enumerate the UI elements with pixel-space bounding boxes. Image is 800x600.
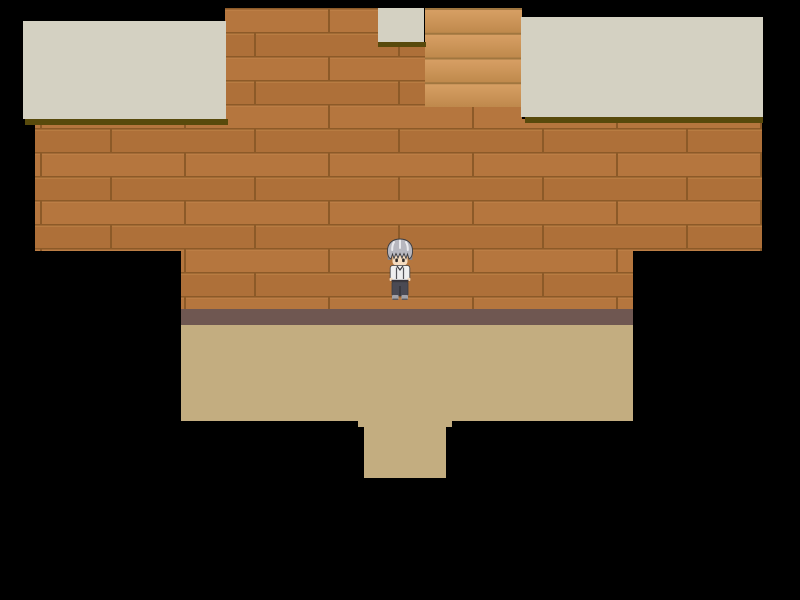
character-sole-right	[402, 299, 408, 300]
staircase[interactable]	[425, 8, 522, 107]
ceiling-ledge-right	[521, 17, 763, 117]
baseboard	[181, 309, 633, 325]
character-eye-left	[395, 259, 398, 263]
character-shirt	[390, 266, 410, 281]
scene-canvas	[0, 0, 800, 600]
game-viewport[interactable]	[0, 0, 800, 600]
ceiling-ledge-left	[23, 21, 226, 119]
ceiling-ledge-center	[378, 8, 424, 42]
ceiling-shadow-left	[25, 119, 228, 125]
character-eye-right	[402, 259, 405, 263]
character-sole-left	[392, 299, 398, 300]
ceiling-shadow-center	[378, 42, 426, 47]
ceiling-shadow-right	[525, 117, 763, 123]
